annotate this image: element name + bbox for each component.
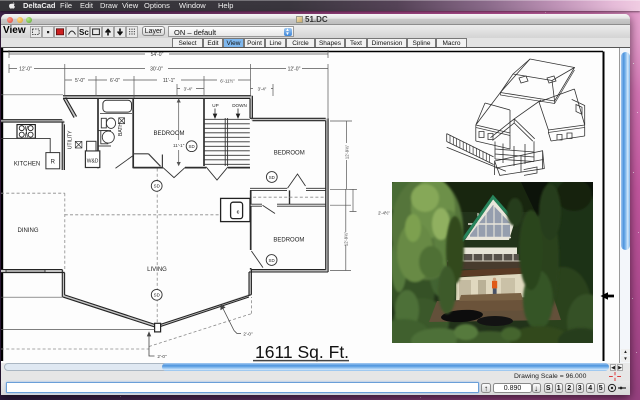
svg-text:SD: SD [269,258,275,263]
svg-text:DINING: DINING [18,228,39,234]
svg-text:LIVING: LIVING [147,267,167,273]
svg-text:W&D: W&D [87,159,99,165]
svg-text:BEDROOM: BEDROOM [153,131,184,137]
svg-text:SD: SD [189,144,195,149]
svg-text:2'-0": 2'-0" [157,354,167,359]
svg-text:SD: SD [154,293,160,298]
svg-text:6'-0": 6'-0" [110,78,120,84]
svg-text:6'-11½": 6'-11½" [220,79,235,84]
svg-text:3'-4": 3'-4" [258,86,267,91]
svg-text:R: R [51,160,56,166]
svg-text:BATH: BATH [118,123,124,136]
svg-text:30'-0": 30'-0" [150,67,163,73]
svg-text:12'-0": 12'-0" [288,67,301,73]
svg-text:SD: SD [154,184,160,189]
svg-text:11'-1": 11'-1" [163,78,176,84]
svg-text:UP: UP [212,103,218,108]
svg-text:12'-9¾": 12'-9¾" [344,231,349,246]
svg-text:11'-1": 11'-1" [173,143,185,148]
svg-text:SD: SD [269,175,275,180]
svg-text:54'-0": 54'-0" [151,52,164,58]
svg-text:3'-4": 3'-4" [184,86,193,91]
svg-text:12'-0": 12'-0" [19,67,32,73]
svg-text:12'-9¾": 12'-9¾" [344,144,349,159]
svg-text:5'-0": 5'-0" [75,78,85,84]
svg-text:Sc: Sc [79,28,89,37]
svg-text:2'-0": 2'-0" [243,332,253,337]
svg-text:BEDROOM: BEDROOM [274,151,305,157]
svg-text:c: c [237,210,240,216]
svg-text:DOWN: DOWN [232,103,247,108]
svg-text:2'-4½": 2'-4½" [378,211,390,216]
svg-text:BEDROOM: BEDROOM [273,238,304,244]
svg-text:KITCHEN: KITCHEN [14,161,40,167]
svg-text:1611 Sq. Ft.: 1611 Sq. Ft. [255,342,349,362]
svg-text:UTILITY: UTILITY [68,130,74,149]
